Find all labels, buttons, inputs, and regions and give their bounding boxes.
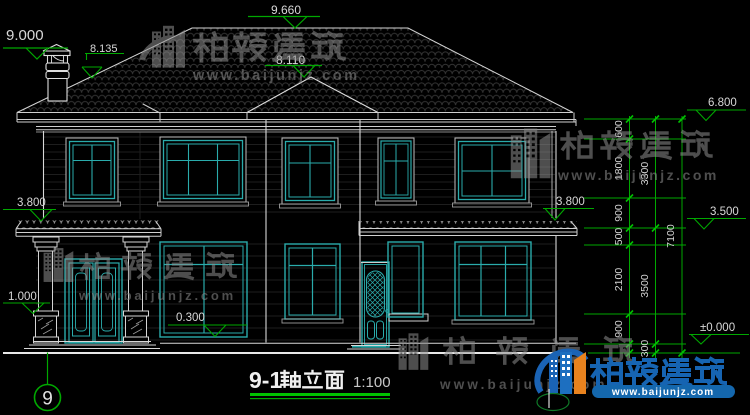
svg-text:www.baijunjz.com: www.baijunjz.com [78, 288, 236, 303]
svg-text:www.baijunjz.com: www.baijunjz.com [557, 167, 719, 183]
svg-text:7100: 7100 [665, 224, 677, 248]
svg-text:1.000: 1.000 [8, 291, 37, 303]
svg-text:0.300: 0.300 [176, 312, 205, 324]
svg-text:±0.000: ±0.000 [700, 322, 735, 334]
svg-text:www.baijunjz.com: www.baijunjz.com [611, 387, 714, 398]
svg-text:300: 300 [639, 340, 651, 358]
svg-text:6.800: 6.800 [708, 97, 737, 109]
svg-text:9.660: 9.660 [271, 3, 301, 17]
svg-text:900: 900 [613, 204, 625, 222]
svg-text:900: 900 [613, 320, 625, 338]
svg-text:1:100: 1:100 [353, 374, 391, 391]
svg-text:2100: 2100 [613, 268, 625, 292]
svg-text:9.000: 9.000 [6, 27, 44, 44]
svg-text:9-1: 9-1 [249, 367, 282, 393]
svg-text:9: 9 [42, 389, 53, 410]
svg-text:500: 500 [613, 228, 625, 246]
svg-text:www.baijunjz.com: www.baijunjz.com [192, 68, 360, 84]
svg-text:3.500: 3.500 [710, 206, 739, 218]
svg-text:3.800: 3.800 [556, 196, 585, 208]
svg-text:3.800: 3.800 [17, 197, 46, 209]
svg-text:3500: 3500 [639, 274, 651, 298]
